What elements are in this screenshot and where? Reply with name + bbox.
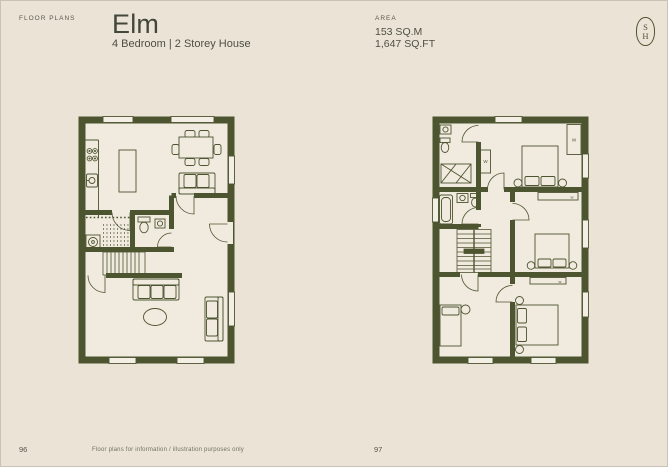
area-label: AREA: [375, 15, 397, 22]
area-sqm-value: 153 SQ.M: [375, 26, 422, 38]
ground-floor-plan: [78, 116, 235, 364]
wardrobe-label: w: [571, 195, 574, 200]
right-page-number: 97: [374, 445, 382, 454]
brand-monogram-logo: S H: [636, 17, 655, 46]
logo-letter-h: H: [642, 32, 648, 41]
house-subtitle: 4 Bedroom | 2 Storey House: [112, 38, 251, 50]
disclaimer-text: Floor plans for information / illustrati…: [1, 447, 335, 453]
wardrobe-label: w: [559, 279, 562, 284]
floorplans-section-label: FLOOR PLANS: [19, 15, 76, 22]
first-floor-plan: W W w: [432, 116, 589, 364]
front-door-opening: [224, 222, 233, 244]
house-title: Elm: [112, 9, 159, 40]
area-sqft-value: 1,647 SQ.FT: [375, 38, 435, 50]
